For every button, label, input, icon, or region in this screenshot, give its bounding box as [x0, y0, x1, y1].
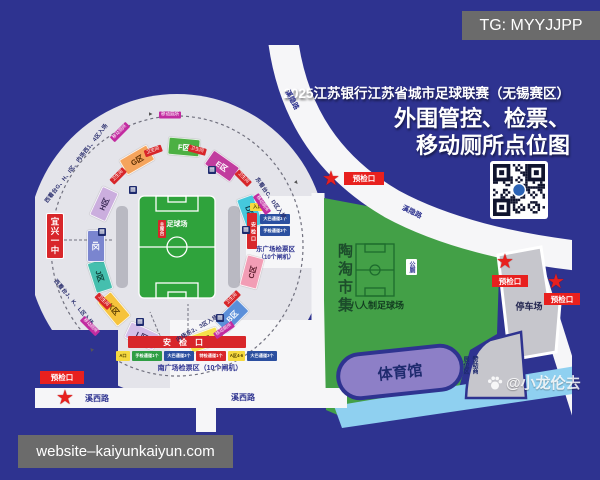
parking-label: 停车场: [515, 300, 542, 313]
precheck-star: ★: [322, 169, 340, 189]
channel-tag: A区4-6: [228, 351, 245, 361]
sponsor-label-left: 展位区: [461, 356, 470, 374]
info-icon: ▦: [98, 228, 106, 236]
west-stand: [116, 206, 128, 288]
channel-tag: 特检通道1个: [196, 351, 226, 361]
mobile-toilet-tag: 移动厕所: [159, 112, 181, 119]
east-zone-label-2: （10个闸机）: [258, 252, 295, 261]
precheck-star: ★: [56, 388, 74, 408]
road-label-xixi: 溪西路: [85, 393, 109, 404]
precheck-star: ★: [547, 272, 565, 292]
watermark-handle: @小龙伦去: [506, 372, 581, 393]
pitch-label: 足球场: [167, 219, 188, 229]
poster-title-line3: 移动厕所点位图: [240, 133, 570, 159]
tg-badge: TG: MYYJJPP: [462, 11, 600, 40]
main-pitch: [139, 196, 215, 298]
channel-tag: A口: [116, 351, 130, 361]
eight-field-label: 八人制足球场: [350, 299, 404, 312]
precheck-label: 预检口: [344, 172, 384, 185]
poster-title-line2: 外围管控、检票、: [240, 106, 570, 132]
channel-tag: 手检通道1个: [132, 351, 162, 361]
paw-icon: [487, 375, 503, 391]
sponsor-label-right: 赞助商: [470, 356, 479, 374]
info-icon: ▦: [208, 166, 216, 174]
precheck-label: 预检口: [544, 293, 580, 305]
east-channel-tag: 手检通道3个: [260, 226, 290, 236]
south-zone-label: 南广场检票区（10个闸机）: [158, 363, 243, 373]
qr-code: [490, 161, 548, 219]
south-channel-row: A口 手检通道1个 大巴通道3个 特检通道1个 A区4-6 大巴通道3个: [116, 351, 277, 361]
info-icon: ▦: [216, 314, 224, 322]
east-stand: [228, 206, 240, 288]
road-label-xixi: 溪西路: [231, 392, 255, 403]
poster-canvas: { "overlay": { "tg": "TG: MYYJJPP", "web…: [0, 0, 600, 480]
precheck-label: 预检口: [40, 371, 84, 384]
watermark: @小龙伦去: [487, 372, 581, 393]
info-icon: ▦: [242, 226, 250, 234]
channel-tag: 大巴通道3个: [164, 351, 194, 361]
info-icon: ▦: [136, 318, 144, 326]
road-stub: [196, 405, 216, 432]
school-label: 宜兴一中: [46, 213, 64, 259]
tg-text: TG: MYYJJPP: [479, 17, 582, 35]
channel-tag: 大巴通道3个: [247, 351, 277, 361]
info-icon: ▦: [129, 186, 137, 194]
website-text: website–kaiyunkaiyun.com: [36, 443, 214, 460]
website-badge: website–kaiyunkaiyun.com: [18, 435, 233, 468]
precheck-star: ★: [496, 252, 514, 272]
precheck-label: 预检口: [492, 275, 528, 287]
rostrum-tag: 主席台: [158, 220, 166, 238]
arrow-icon: ▲: [147, 111, 153, 117]
public-toilet-tag: 公厕: [406, 259, 417, 275]
bottom-road: [35, 388, 347, 408]
